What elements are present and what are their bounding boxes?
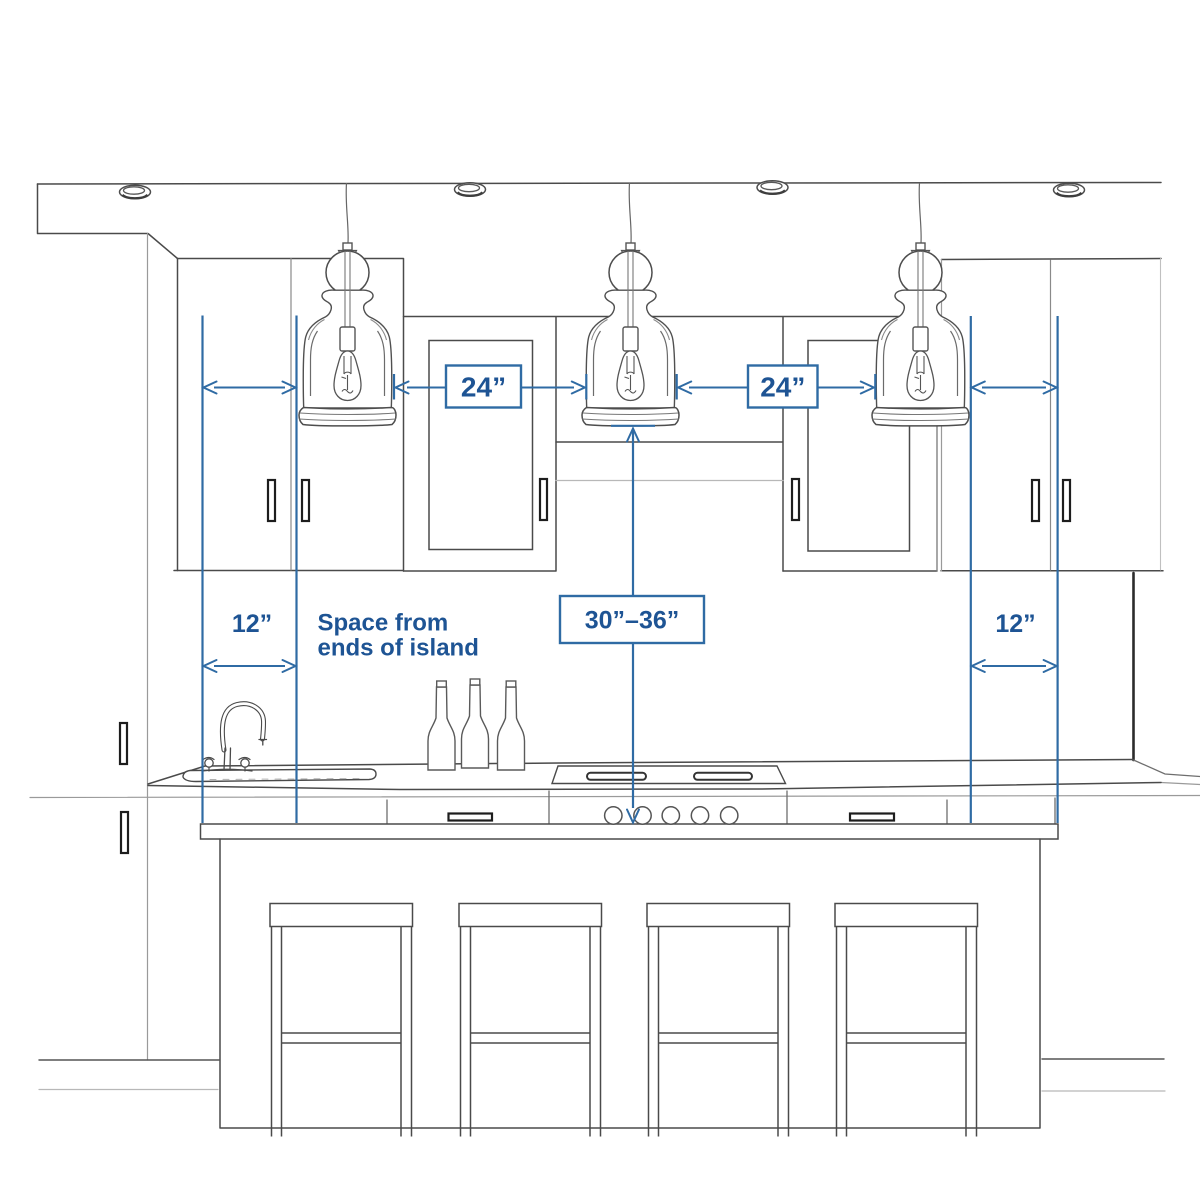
svg-text:12”: 12”: [995, 610, 1035, 638]
svg-text:24”: 24”: [760, 372, 805, 403]
svg-text:30”–36”: 30”–36”: [585, 607, 680, 635]
svg-text:12”: 12”: [232, 610, 272, 638]
svg-text:Space from: Space from: [318, 610, 449, 637]
svg-text:24”: 24”: [461, 372, 506, 403]
svg-text:ends of island: ends of island: [318, 635, 479, 662]
